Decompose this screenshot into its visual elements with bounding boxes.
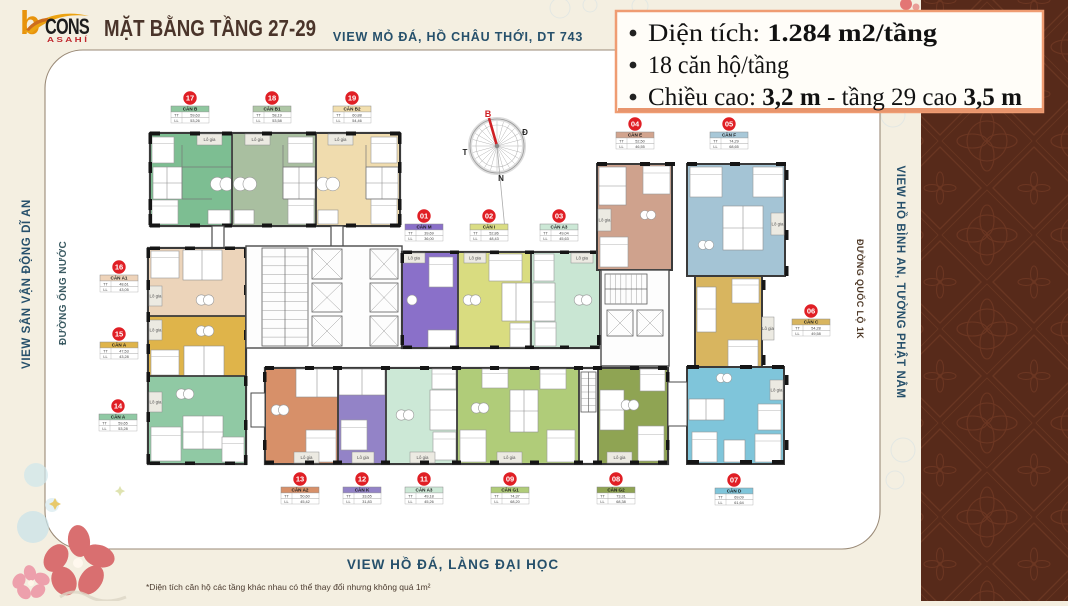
- svg-text:11: 11: [420, 475, 428, 484]
- svg-text:CĂN D: CĂN D: [727, 488, 742, 494]
- svg-text:59,63: 59,63: [190, 113, 200, 117]
- svg-text:TT: TT: [408, 494, 413, 498]
- svg-text:09: 09: [506, 475, 514, 484]
- svg-text:47,53: 47,53: [119, 349, 129, 353]
- svg-text:02: 02: [485, 212, 493, 221]
- svg-text:VIEW MỎ ĐÁ, HỒ CHÂU THỚI, DT 7: VIEW MỎ ĐÁ, HỒ CHÂU THỚI, DT 743: [333, 29, 583, 44]
- svg-text:B: B: [485, 109, 492, 119]
- svg-text:Lô gia: Lô gia: [504, 455, 517, 460]
- svg-text:LL: LL: [102, 427, 106, 431]
- svg-text:CĂN A: CĂN A: [112, 342, 127, 348]
- svg-text:CĂN M: CĂN M: [416, 224, 431, 230]
- svg-text:68,20: 68,20: [510, 500, 520, 504]
- svg-text:15: 15: [115, 330, 123, 339]
- svg-text:Lô gia: Lô gia: [150, 294, 163, 299]
- svg-text:45,42: 45,42: [300, 500, 310, 504]
- svg-text:08: 08: [612, 475, 620, 484]
- svg-text:Lô gia: Lô gia: [335, 137, 348, 142]
- svg-text:TT: TT: [600, 494, 605, 498]
- svg-text:Lô gia: Lô gia: [771, 388, 784, 393]
- svg-text:MẶT BẰNG TẦNG 27-29: MẶT BẰNG TẦNG 27-29: [104, 14, 316, 41]
- svg-text:Lô gia: Lô gia: [576, 256, 589, 261]
- svg-text:TT: TT: [543, 231, 548, 235]
- svg-text:74,37: 74,37: [510, 494, 520, 498]
- svg-text:N: N: [498, 174, 504, 183]
- svg-text:52,50: 52,50: [635, 139, 645, 143]
- svg-text:LL: LL: [600, 500, 604, 504]
- svg-text:LL: LL: [713, 145, 717, 149]
- svg-text:CĂN A3: CĂN A3: [416, 487, 433, 493]
- svg-text:04: 04: [631, 120, 640, 129]
- svg-text:01: 01: [420, 212, 428, 221]
- svg-text:49,58: 49,58: [811, 332, 821, 336]
- svg-text:VIEW SÂN VẬN ĐỘNG DĨ AN: VIEW SÂN VẬN ĐỘNG DĨ AN: [20, 199, 33, 369]
- svg-text:07: 07: [730, 476, 738, 485]
- svg-text:60,88: 60,88: [352, 113, 362, 117]
- svg-text:59,65: 59,65: [118, 421, 128, 425]
- svg-text:43,05: 43,05: [119, 288, 129, 292]
- svg-text:LL: LL: [408, 500, 412, 504]
- svg-text:39,69: 39,69: [424, 231, 434, 235]
- svg-text:CĂN I: CĂN I: [483, 224, 496, 230]
- svg-text:LL: LL: [174, 119, 178, 123]
- svg-text:CĂN G1: CĂN G1: [501, 487, 519, 493]
- svg-text:TT: TT: [284, 494, 289, 498]
- svg-text:53,26: 53,26: [190, 119, 200, 123]
- svg-text:53,58: 53,58: [272, 119, 282, 123]
- svg-text:03: 03: [555, 212, 563, 221]
- svg-text:CĂN A3: CĂN A3: [551, 224, 568, 230]
- svg-text:Lô gia: Lô gia: [204, 137, 217, 142]
- svg-text:46,55: 46,55: [635, 145, 645, 149]
- svg-text:CĂN C: CĂN C: [804, 319, 819, 325]
- svg-text:Lô gia: Lô gia: [252, 137, 265, 142]
- svg-text:Chiều cao: 3,2 m - tầng 29 cao: Chiều cao: 3,2 m - tầng 29 cao 3,5 m: [648, 84, 1022, 111]
- svg-text:LL: LL: [494, 500, 498, 504]
- svg-text:19: 19: [348, 94, 356, 103]
- svg-text:*Diện tích căn hộ các tầng khá: *Diện tích căn hộ các tầng khác nhau có …: [146, 582, 431, 592]
- svg-text:LL: LL: [795, 332, 799, 336]
- svg-text:31,83: 31,83: [362, 500, 372, 504]
- svg-text:52,86: 52,86: [489, 231, 499, 235]
- svg-text:58,19: 58,19: [272, 113, 282, 117]
- svg-text:VIEW HỒ BÌNH AN, TƯỜNG PHẬT NẰ: VIEW HỒ BÌNH AN, TƯỜNG PHẬT NẰM: [894, 165, 907, 398]
- svg-text:TT: TT: [408, 231, 413, 235]
- svg-text:CĂN F: CĂN F: [722, 132, 736, 138]
- svg-text:CĂN K: CĂN K: [355, 487, 370, 493]
- svg-text:CĂN E: CĂN E: [628, 132, 642, 138]
- svg-text:Lô gia: Lô gia: [150, 328, 163, 333]
- svg-text:LL: LL: [284, 500, 288, 504]
- svg-text:TT: TT: [336, 113, 341, 117]
- svg-text:Lô gia: Lô gia: [614, 455, 627, 460]
- svg-text:48,43: 48,43: [489, 237, 499, 241]
- svg-text:45,26: 45,26: [424, 500, 434, 504]
- svg-text:05: 05: [725, 120, 733, 129]
- svg-text:Lô gia: Lô gia: [599, 218, 612, 223]
- svg-text:Lô gia: Lô gia: [150, 400, 163, 405]
- svg-text:TT: TT: [346, 494, 351, 498]
- svg-text:49,18: 49,18: [424, 494, 434, 498]
- svg-text:Lô gia: Lô gia: [469, 256, 482, 261]
- svg-text:TT: TT: [256, 113, 261, 117]
- svg-text:VIEW HỒ ĐÁ, LÀNG ĐẠI HỌC: VIEW HỒ ĐÁ, LÀNG ĐẠI HỌC: [347, 557, 559, 572]
- svg-text:TT: TT: [795, 326, 800, 330]
- svg-text:16: 16: [115, 263, 123, 272]
- svg-text:33,65: 33,65: [362, 494, 372, 498]
- svg-text:LL: LL: [473, 237, 477, 241]
- svg-text:68,65: 68,65: [729, 145, 739, 149]
- svg-text:36,00: 36,00: [424, 237, 434, 241]
- svg-text:LL: LL: [103, 288, 107, 292]
- svg-text:Lô gia: Lô gia: [772, 222, 785, 227]
- svg-text:TT: TT: [619, 139, 624, 143]
- svg-text:LL: LL: [543, 237, 547, 241]
- svg-text:TT: TT: [713, 139, 718, 143]
- svg-text:68,38: 68,38: [616, 500, 626, 504]
- svg-text:12: 12: [358, 475, 366, 484]
- svg-text:Đ: Đ: [522, 128, 528, 137]
- svg-text:TT: TT: [103, 282, 108, 286]
- svg-text:13: 13: [296, 475, 304, 484]
- svg-text:TT: TT: [174, 113, 179, 117]
- svg-text:LL: LL: [619, 145, 623, 149]
- svg-text:69,09: 69,09: [734, 495, 744, 499]
- svg-text:LL: LL: [103, 355, 107, 359]
- svg-text:LL: LL: [256, 119, 260, 123]
- svg-text:CĂN G2: CĂN G2: [607, 487, 625, 493]
- svg-text:43,28: 43,28: [119, 355, 129, 359]
- svg-text:LL: LL: [336, 119, 340, 123]
- svg-text:06: 06: [807, 307, 815, 316]
- svg-text:CĂN B: CĂN B: [183, 106, 198, 112]
- svg-text:45,63: 45,63: [559, 237, 569, 241]
- svg-text:TT: TT: [102, 421, 107, 425]
- svg-text:T: T: [463, 148, 468, 157]
- svg-text:53,28: 53,28: [118, 427, 128, 431]
- svg-text:61,64: 61,64: [734, 501, 744, 505]
- svg-text:CĂN A: CĂN A: [111, 414, 126, 420]
- svg-text:73,31: 73,31: [616, 494, 626, 498]
- svg-text:54,28: 54,28: [811, 326, 821, 330]
- svg-text:Lô gia: Lô gia: [762, 326, 775, 331]
- svg-text:TT: TT: [473, 231, 478, 235]
- svg-text:LL: LL: [408, 237, 412, 241]
- svg-text:54,46: 54,46: [352, 119, 362, 123]
- svg-text:CĂN B2: CĂN B2: [343, 106, 361, 112]
- svg-text:LL: LL: [718, 501, 722, 505]
- svg-text:18: 18: [268, 94, 276, 103]
- svg-text:18 căn hộ/tầng: 18 căn hộ/tầng: [648, 52, 789, 79]
- svg-text:14: 14: [114, 402, 123, 411]
- svg-text:17: 17: [186, 94, 194, 103]
- svg-text:Lô gia: Lô gia: [301, 455, 314, 460]
- svg-text:CĂN A2: CĂN A2: [292, 487, 309, 493]
- svg-text:CONS: CONS: [45, 14, 89, 39]
- svg-text:Diện tích: 1.284 m2/tầng: Diện tích: 1.284 m2/tầng: [648, 20, 938, 47]
- svg-text:ĐƯỜNG ỐNG NƯỚC: ĐƯỜNG ỐNG NƯỚC: [55, 241, 69, 345]
- svg-text:TT: TT: [718, 495, 723, 499]
- svg-text:A S A H Í: A S A H Í: [47, 35, 88, 44]
- svg-text:50,60: 50,60: [300, 494, 310, 498]
- svg-text:74,29: 74,29: [729, 139, 739, 143]
- svg-text:ĐƯỜNG QUỐC LỘ 1K: ĐƯỜNG QUỐC LỘ 1K: [855, 239, 866, 339]
- svg-text:CĂN B1: CĂN B1: [263, 106, 281, 112]
- svg-text:TT: TT: [103, 349, 108, 353]
- svg-text:Lô gia: Lô gia: [408, 256, 421, 261]
- svg-text:Lô gia: Lô gia: [357, 455, 370, 460]
- svg-text:48,61: 48,61: [119, 282, 129, 286]
- svg-text:TT: TT: [494, 494, 499, 498]
- svg-text:CĂN A1: CĂN A1: [111, 275, 128, 281]
- svg-text:Lô gia: Lô gia: [417, 455, 430, 460]
- svg-text:49,04: 49,04: [559, 231, 569, 235]
- svg-text:LL: LL: [346, 500, 350, 504]
